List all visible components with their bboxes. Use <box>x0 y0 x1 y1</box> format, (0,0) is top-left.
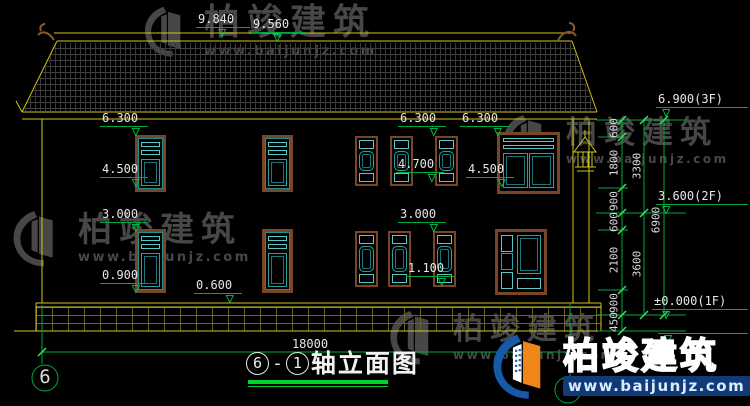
brand-logo-icon <box>8 208 70 270</box>
elevation-marker: 6.300▽ <box>398 112 446 127</box>
brand-emblem-icon <box>487 331 559 403</box>
plinth-brick-hatch <box>36 307 601 331</box>
elevation-marker: ±0.000(1F)▽ <box>652 295 748 310</box>
elevation-marker: 4.500▽ <box>100 163 148 178</box>
elevation-triangle-icon: ▽ <box>438 276 446 289</box>
title-underline <box>248 380 388 384</box>
elevation-marker: 3.000▽ <box>398 208 446 223</box>
dim-label: 6900 <box>650 197 663 243</box>
elevation-triangle-icon: ▽ <box>662 309 670 322</box>
elevation-triangle-icon: ▽ <box>132 126 140 139</box>
watermark-text: 柏竣建筑 www.baijunjz.com <box>566 118 729 166</box>
elevation-marker: 3.600(2F)▽ <box>656 190 748 205</box>
window-2f-mid-1 <box>355 136 378 186</box>
dim-label: 3600 <box>631 241 644 287</box>
elevation-marker: 0.600▽ <box>194 279 242 294</box>
title-axis-b: 1 <box>286 352 309 375</box>
axis-bubble-left: 6 <box>31 364 59 392</box>
watermark-brand: 柏竣建筑 <box>566 118 729 149</box>
elevation-triangle-icon: ▽ <box>430 126 438 139</box>
window-1f-left-2 <box>262 229 293 293</box>
brand-name: 柏竣建筑 <box>563 338 750 376</box>
elevation-triangle-icon: ▽ <box>430 222 438 235</box>
window-2f-left-2 <box>262 135 293 192</box>
elevation-triangle-icon: ▽ <box>273 32 281 45</box>
watermark-url: www.baijunjz.com <box>566 152 729 166</box>
elevation-marker: 9.560▽ <box>251 18 305 33</box>
title-underline-thin <box>248 386 388 387</box>
elevation-triangle-icon: ▽ <box>428 172 436 185</box>
brand-footer-logo: 柏竣建筑 www.baijunjz.com <box>487 331 750 403</box>
elevation-triangle-icon: ▽ <box>662 204 670 217</box>
elevation-marker: 4.700▽ <box>396 158 444 173</box>
brand-url: www.baijunjz.com <box>563 376 750 396</box>
window-1f-mid-1 <box>355 231 378 287</box>
elevation-marker: 6.300▽ <box>100 112 148 127</box>
elevation-marker: 6.900(3F)▽ <box>656 93 748 108</box>
elevation-triangle-icon: ▽ <box>662 107 670 120</box>
elevation-triangle-icon: ▽ <box>498 177 506 190</box>
dim-label: 2100 <box>608 237 621 283</box>
window-1f-right <box>495 229 547 295</box>
window-1f-mid-2 <box>388 231 411 287</box>
elevation-triangle-icon: ▽ <box>494 126 502 139</box>
brand-text-block: 柏竣建筑 www.baijunjz.com <box>563 338 750 397</box>
elevation-triangle-icon: ▽ <box>226 293 234 306</box>
title-axis-a: 6 <box>246 352 269 375</box>
elevation-marker: 0.900▽ <box>100 269 148 284</box>
elevation-marker: 1.100▽ <box>406 262 454 277</box>
elevation-triangle-icon: ▽ <box>132 222 140 235</box>
elevation-triangle-icon: ▽ <box>218 27 226 40</box>
dim-label: 3300 <box>631 143 644 189</box>
elevation-triangle-icon: ▽ <box>132 177 140 190</box>
elevation-marker: 3.000▽ <box>100 208 148 223</box>
drawing-title: 6 - 1 轴立面图 <box>246 351 419 376</box>
title-text: 轴立面图 <box>311 351 419 376</box>
elevation-marker: 6.300▽ <box>460 112 510 127</box>
elevation-marker: 9.840▽ <box>196 13 250 28</box>
cad-elevation-drawing: 柏竣建筑 www.baijunjz.com 柏竣建筑 www.baijunjz.… <box>0 0 750 406</box>
title-separator: - <box>272 353 283 374</box>
elevation-marker: 4.500▽ <box>466 163 514 178</box>
elevation-triangle-icon: ▽ <box>132 283 140 296</box>
